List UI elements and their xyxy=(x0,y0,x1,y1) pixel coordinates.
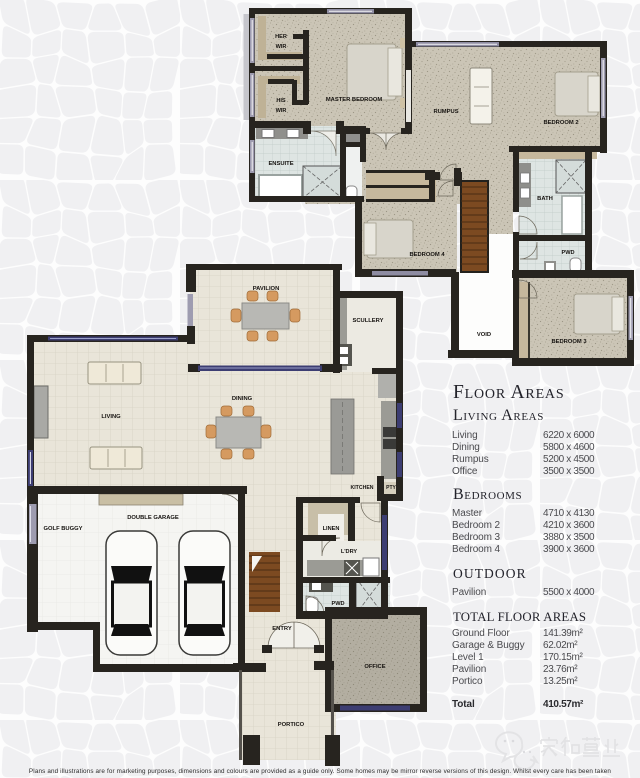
svg-text:OFFICE: OFFICE xyxy=(364,664,385,670)
svg-text:RUMPUS: RUMPUS xyxy=(433,109,458,115)
svg-text:DOUBLE GARAGE: DOUBLE GARAGE xyxy=(127,515,179,521)
svg-text:L'DRY: L'DRY xyxy=(341,549,358,555)
svg-text:PTY: PTY xyxy=(386,485,396,491)
svg-text:GOLF BUGGY: GOLF BUGGY xyxy=(44,526,83,532)
svg-text:BEDROOM 4: BEDROOM 4 xyxy=(409,252,445,258)
svg-text:SCULLERY: SCULLERY xyxy=(352,318,383,324)
svg-text:BEDROOM 2: BEDROOM 2 xyxy=(543,120,578,126)
svg-text:PWD: PWD xyxy=(331,601,344,607)
svg-text:HER: HER xyxy=(275,34,287,40)
svg-text:PAVILION: PAVILION xyxy=(253,286,280,292)
svg-text:ENTRY: ENTRY xyxy=(272,626,292,632)
svg-text:ENSUITE: ENSUITE xyxy=(268,161,293,167)
svg-text:VOID: VOID xyxy=(477,332,491,338)
svg-text:WIR: WIR xyxy=(276,44,287,50)
svg-text:LINEN: LINEN xyxy=(323,526,340,532)
svg-text:PORTICO: PORTICO xyxy=(278,722,305,728)
svg-text:BEDROOM 3: BEDROOM 3 xyxy=(551,339,587,345)
svg-text:BATH: BATH xyxy=(537,196,553,202)
svg-text:DINING: DINING xyxy=(232,396,253,402)
svg-text:PWD: PWD xyxy=(561,250,574,256)
svg-text:WIR: WIR xyxy=(276,108,287,114)
svg-text:MASTER BEDROOM: MASTER BEDROOM xyxy=(326,97,383,103)
svg-text:HIS: HIS xyxy=(276,98,286,104)
svg-text:LIVING: LIVING xyxy=(101,414,121,420)
svg-text:KITCHEN: KITCHEN xyxy=(350,485,373,491)
